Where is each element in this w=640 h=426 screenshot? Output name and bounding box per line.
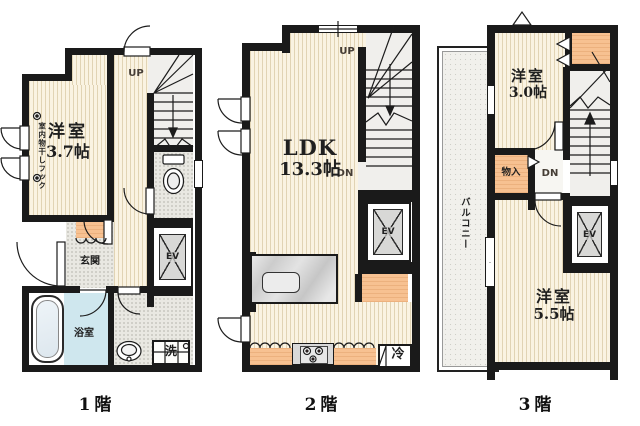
room-size-text: 5.5帖: [514, 306, 594, 323]
balcony-label: バルコニー: [458, 178, 469, 268]
window-swing-arc: [1, 158, 22, 179]
room-size-text: 3.0帖: [492, 85, 564, 101]
cabinet-scallops: [76, 238, 106, 243]
window-swing-arc: [218, 99, 242, 123]
room-name: LDK 13.3帖: [258, 136, 362, 181]
floor-2-label: 2階: [278, 390, 368, 415]
entrance-door-leaf: [57, 242, 65, 286]
floor-2-plan: EV: [228, 10, 420, 376]
laundry-label: 洗: [159, 345, 183, 359]
room-name-text: 洋室: [514, 288, 594, 306]
washbasin-icon: [117, 342, 141, 362]
floor-3-label: 3階: [492, 390, 582, 415]
storage-label: 物入: [494, 168, 528, 179]
indoor-hook-note: 室内物干しフック: [37, 118, 46, 194]
floor-1-plan: EV: [15, 10, 210, 376]
fridge-label: 冷: [386, 348, 410, 363]
bathroom-label: 浴室: [64, 328, 104, 340]
room-door-leaf: [535, 193, 561, 200]
room-size-text: 13.3帖: [258, 160, 362, 181]
room-door-arc: [528, 122, 555, 150]
stove-burners: [304, 348, 323, 363]
door-leaf: [124, 47, 150, 56]
closet-bifold-door: [557, 37, 570, 51]
closet-bifold-door: [557, 53, 570, 67]
stairs-up-label: UP: [123, 68, 149, 79]
window-swing-arc: [1, 128, 22, 149]
door-arc: [218, 318, 242, 342]
stair-direction-arrow: [154, 95, 193, 151]
storage-door-marker: [528, 156, 539, 168]
floor-3-plan: EV: [432, 10, 627, 376]
counter-scallops: [250, 343, 290, 348]
room-name: 洋室 3.0帖: [492, 68, 564, 101]
counter-scallops: [334, 343, 374, 348]
room-name-text: LDK: [258, 136, 362, 160]
washroom-door-arc: [118, 292, 140, 314]
toilet-icon: [163, 155, 184, 194]
room-name: 洋室 5.5帖: [514, 288, 594, 324]
entrance-door-arc: [17, 242, 61, 286]
room-name-text: 洋室: [492, 68, 564, 85]
floor-1-details: [0, 10, 210, 376]
door-leaf: [241, 316, 250, 342]
fridge-detail: [379, 345, 386, 367]
entrance-label: 玄関: [70, 256, 110, 268]
window-swing-arc: [218, 131, 242, 155]
roof-vent-triangle: [513, 12, 531, 25]
floor-2-details: [213, 10, 420, 376]
room-door-arc: [535, 200, 561, 226]
floor-plan-canvas: EV: [0, 0, 640, 426]
floor-1-label: 1階: [52, 390, 142, 415]
bathroom-door-arc: [80, 290, 106, 316]
stairs-down-label: DN: [536, 168, 564, 179]
room-door-leaf: [555, 122, 563, 150]
toilet-door-leaf: [146, 188, 154, 214]
stairs-up-label: UP: [334, 46, 360, 57]
stair-treads: [366, 26, 412, 166]
washroom-door-leaf: [118, 287, 140, 294]
